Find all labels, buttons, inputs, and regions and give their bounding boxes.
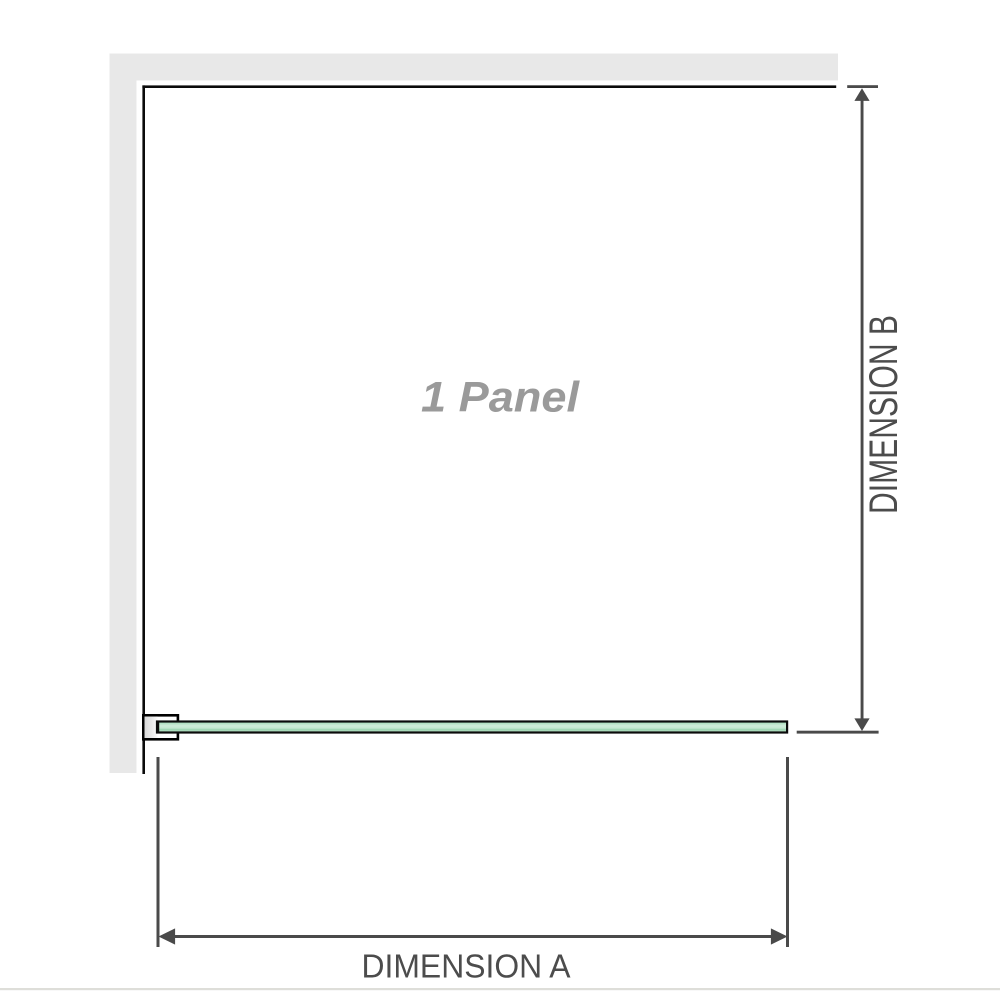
svg-text:1 Panel: 1 Panel (421, 374, 580, 422)
svg-text:DIMENSION B: DIMENSION B (862, 315, 906, 514)
svg-text:DIMENSION A: DIMENSION A (362, 948, 571, 985)
